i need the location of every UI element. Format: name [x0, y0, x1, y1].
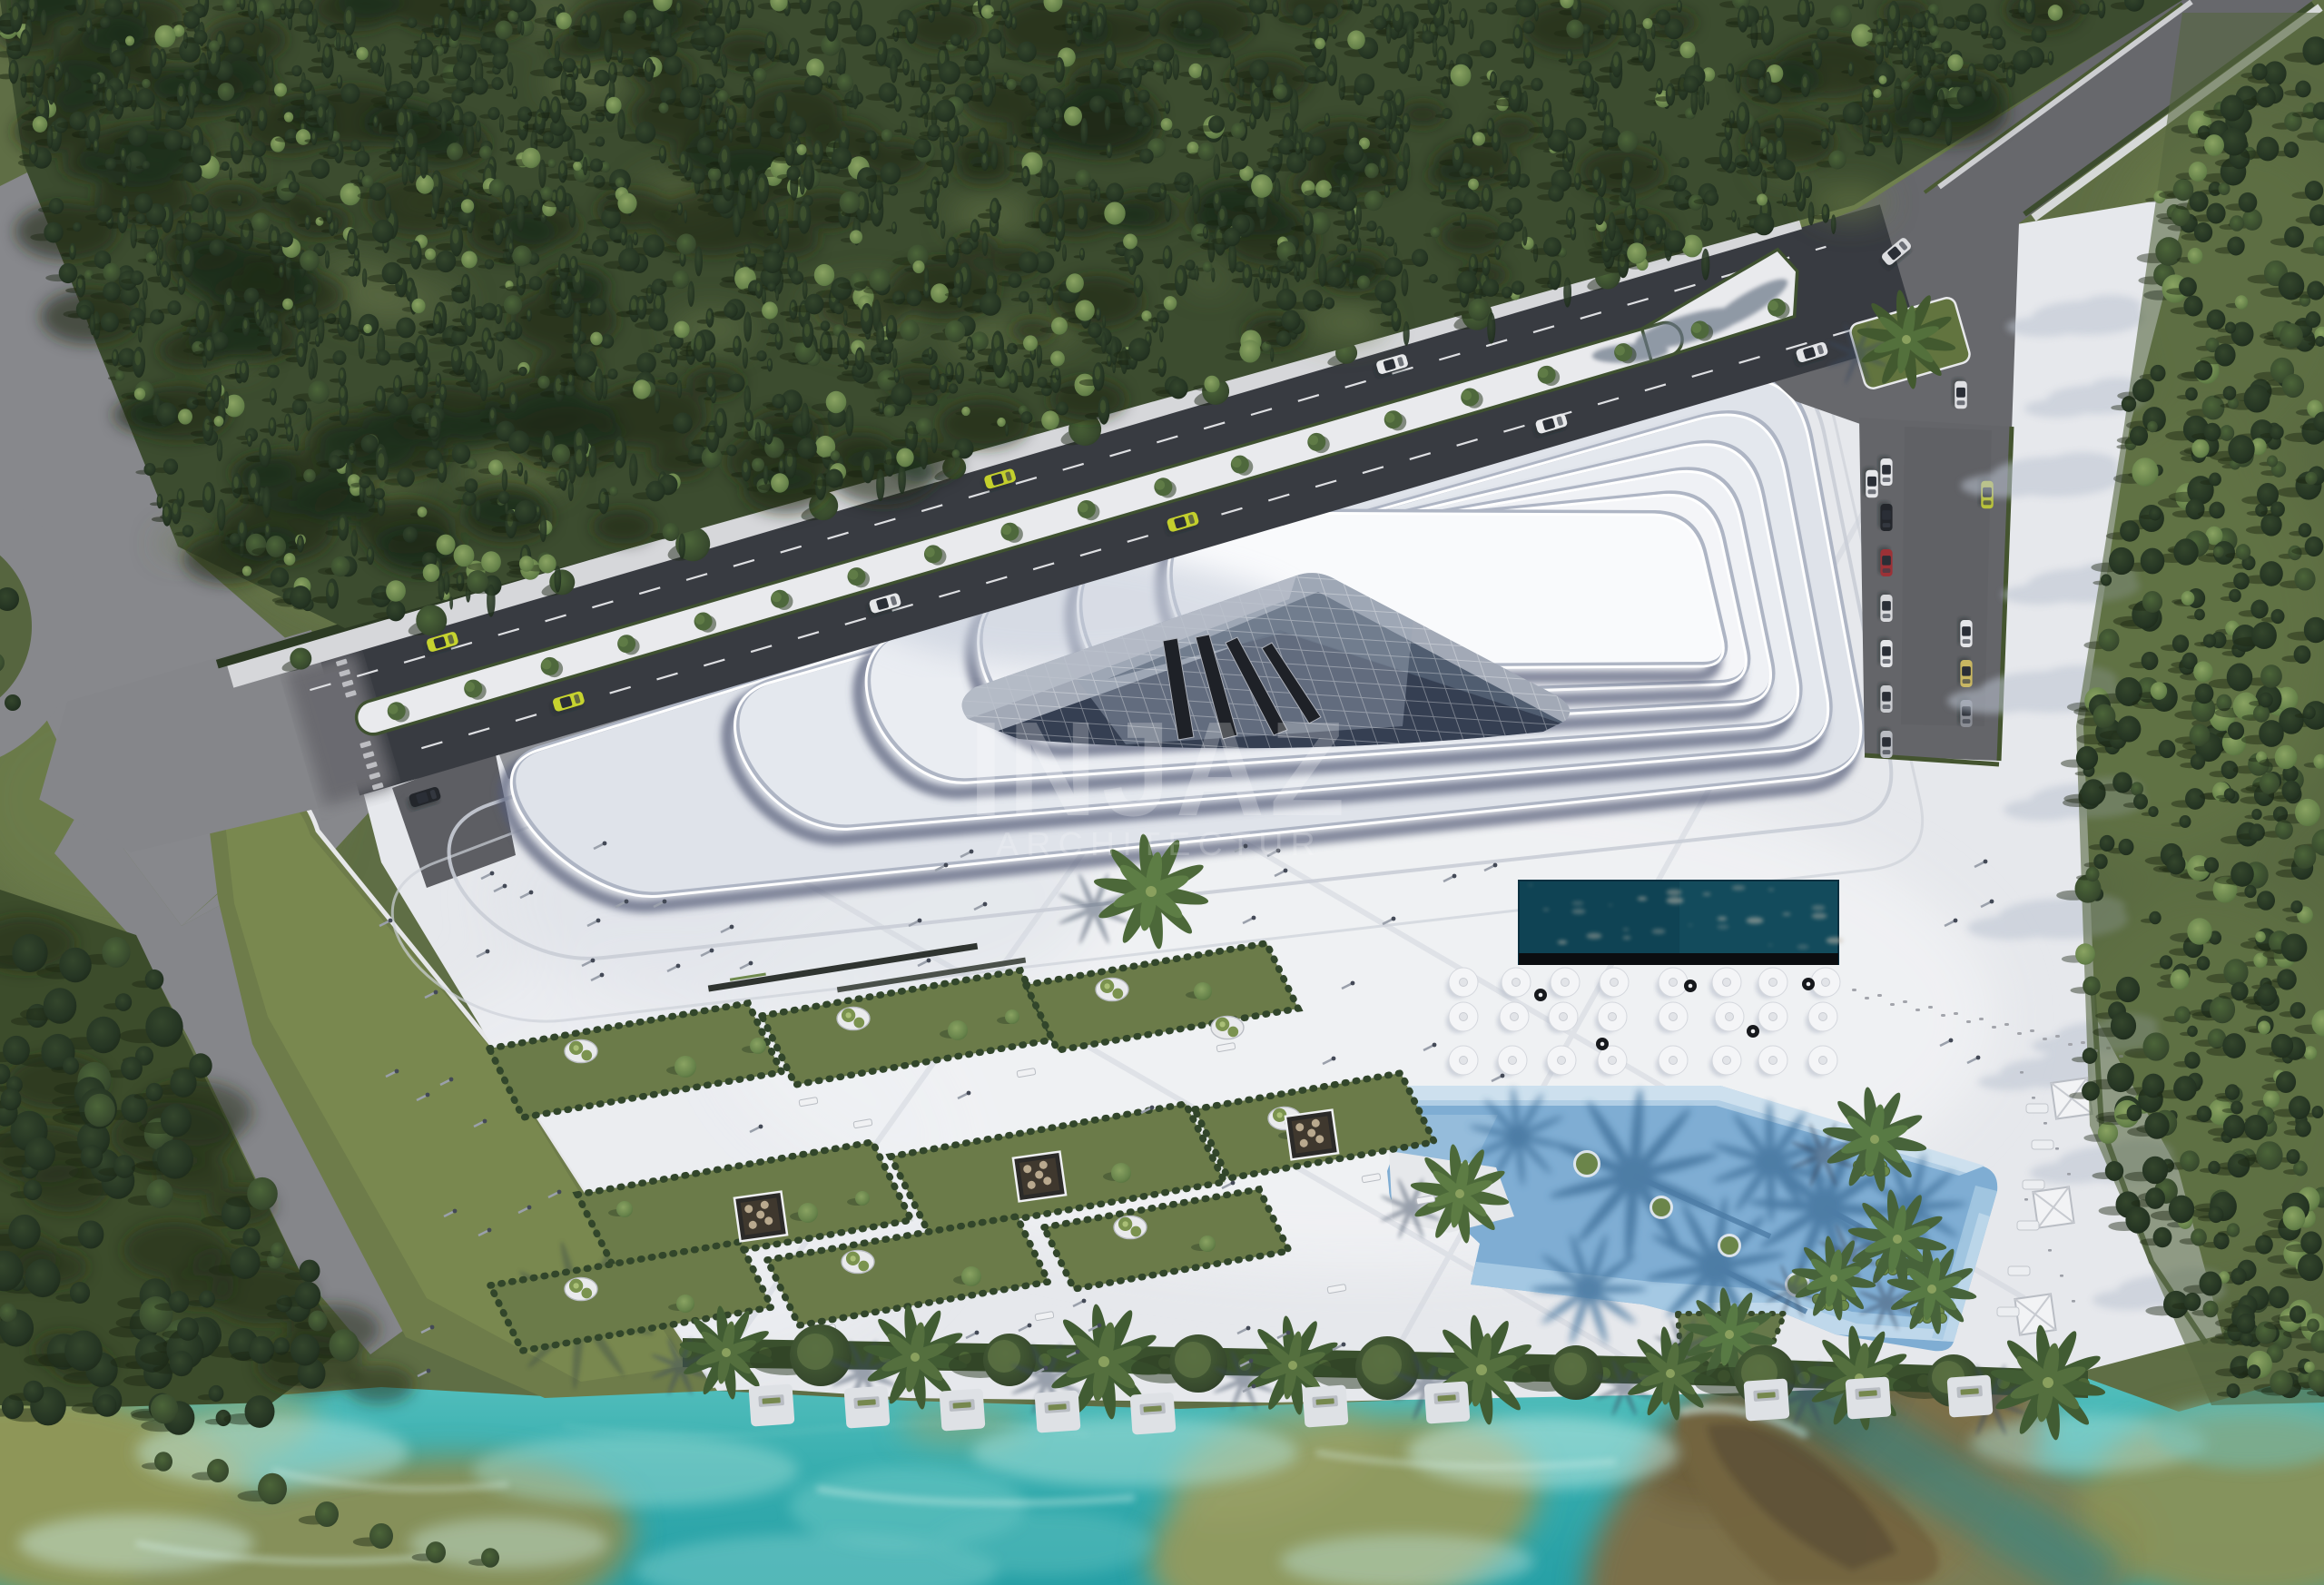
svg-text:ARCHITECTUR: ARCHITECTUR — [996, 825, 1323, 862]
svg-text:INJAZ: INJAZ — [969, 694, 1350, 844]
